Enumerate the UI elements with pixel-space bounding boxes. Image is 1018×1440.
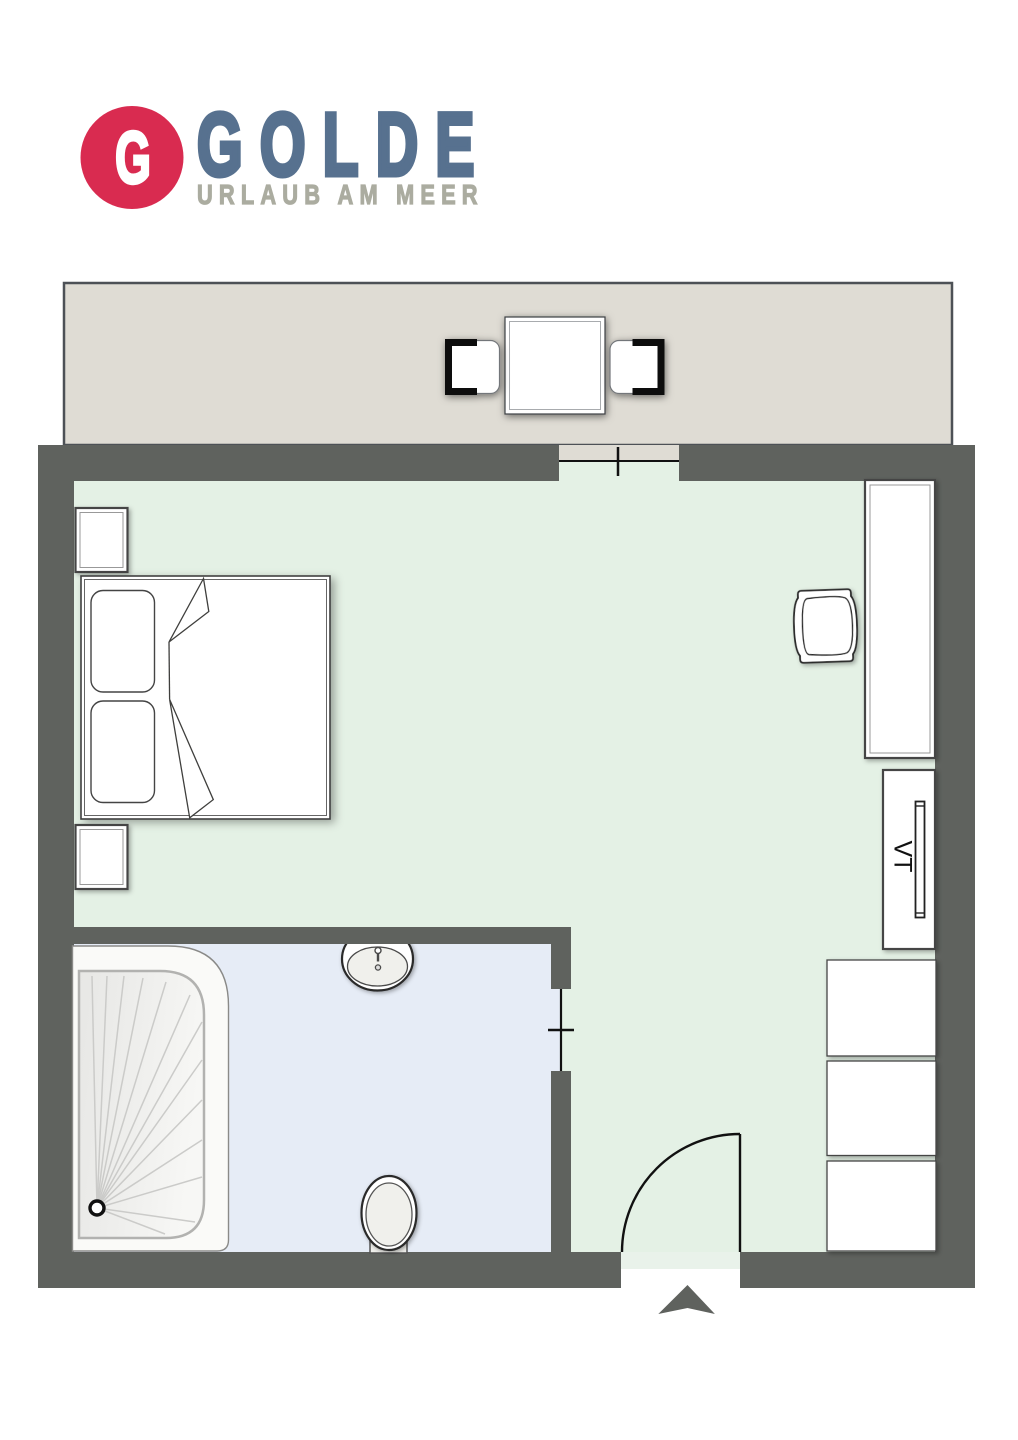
- svg-text:G: G: [115, 117, 151, 198]
- svg-text:VT: VT: [889, 841, 917, 873]
- svg-text:URLAUB AM MEER: URLAUB AM MEER: [197, 179, 484, 210]
